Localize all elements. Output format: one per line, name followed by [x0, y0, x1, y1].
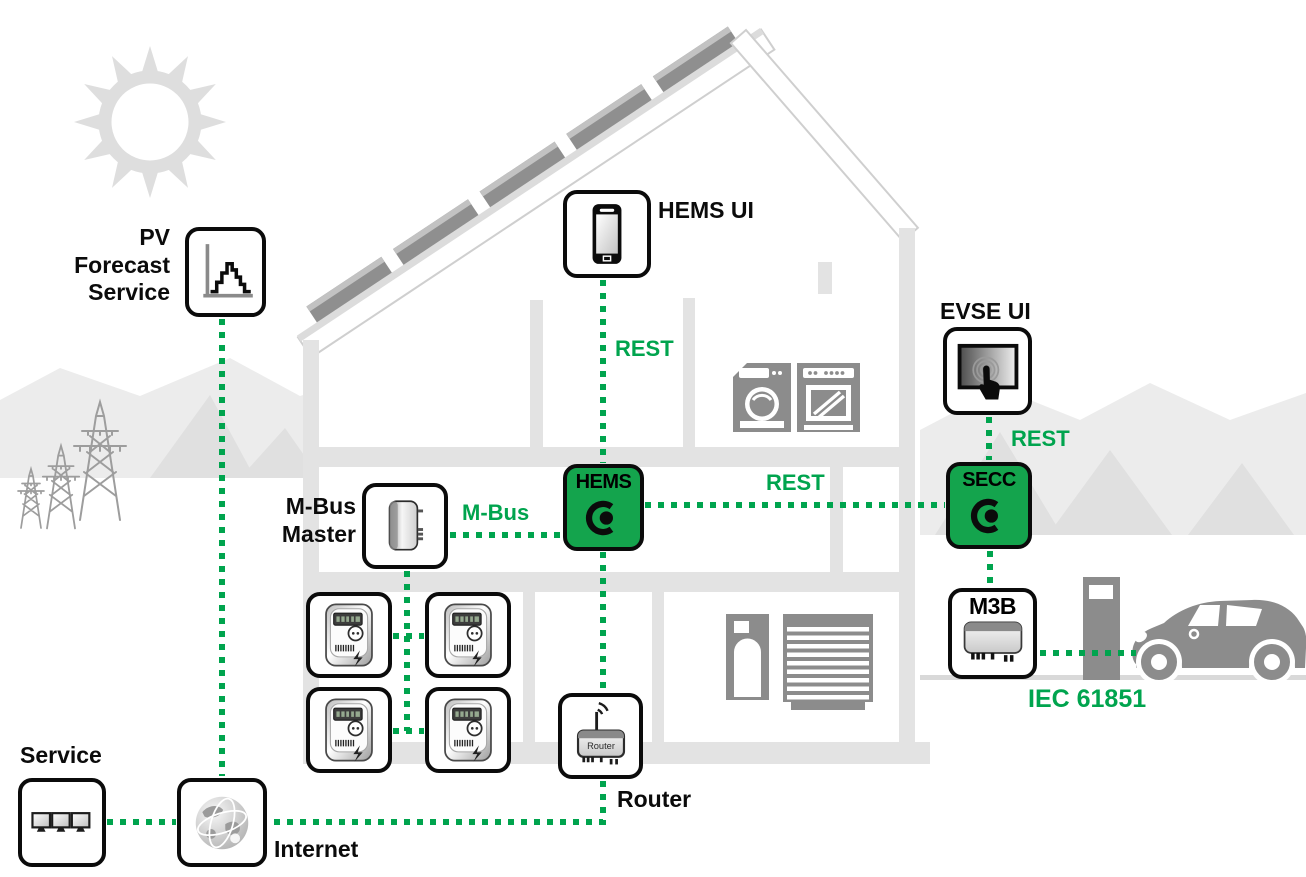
meter-box	[425, 687, 511, 773]
hems-box: HEMS	[563, 464, 644, 551]
evse-ui-label: EVSE UI	[940, 298, 1031, 326]
hems-ui-label: HEMS UI	[658, 197, 754, 225]
mbus-master-box	[362, 483, 448, 569]
rest-label-evseui: REST	[1011, 426, 1070, 452]
iec61851-label: IEC 61851	[1028, 685, 1146, 714]
connection-links	[0, 0, 1306, 877]
electricity-meter-icon	[433, 695, 503, 765]
wall-device-icon	[372, 493, 438, 559]
electricity-meter-icon	[433, 600, 503, 670]
forecast-chart-icon	[193, 235, 259, 309]
meter-box	[306, 592, 392, 678]
pv-forecast-label: PV Forecast Service	[18, 224, 170, 307]
m3b-box: M3B	[948, 588, 1037, 679]
diagram-canvas: HEMS SECC Router	[0, 0, 1306, 877]
router-box: Router	[558, 693, 643, 779]
link-router-internet	[268, 781, 603, 822]
secc-title: SECC	[962, 469, 1016, 491]
meter-box	[425, 592, 511, 678]
m3b-title: M3B	[969, 594, 1016, 619]
din-module-icon	[958, 619, 1028, 665]
service-box	[18, 778, 106, 867]
meter-box	[306, 687, 392, 773]
hems-title: HEMS	[576, 471, 632, 493]
router-device-label: Router	[587, 741, 615, 751]
touchscreen-icon	[953, 336, 1023, 406]
evse-ui-box	[943, 327, 1032, 415]
monitors-icon	[27, 788, 97, 858]
electricity-meter-icon	[314, 695, 384, 765]
router-label: Router	[617, 786, 691, 814]
hems-ui-box	[563, 190, 651, 278]
internet-box	[177, 778, 267, 867]
c-dot-logo-icon	[964, 491, 1014, 541]
mbus-label: M-Bus	[462, 500, 529, 526]
wifi-router-icon: Router	[566, 701, 636, 771]
mbus-master-label: M-Bus Master	[246, 493, 356, 548]
c-dot-logo-icon	[579, 493, 629, 543]
rest-label-hems-secc: REST	[766, 470, 825, 496]
pv-forecast-box	[185, 227, 266, 317]
rest-label-hemsui: REST	[615, 336, 674, 362]
globe-icon	[187, 788, 257, 858]
smartphone-icon	[574, 201, 640, 267]
electricity-meter-icon	[314, 600, 384, 670]
service-label: Service	[20, 742, 102, 770]
secc-box: SECC	[946, 462, 1032, 549]
internet-label: Internet	[274, 836, 358, 864]
